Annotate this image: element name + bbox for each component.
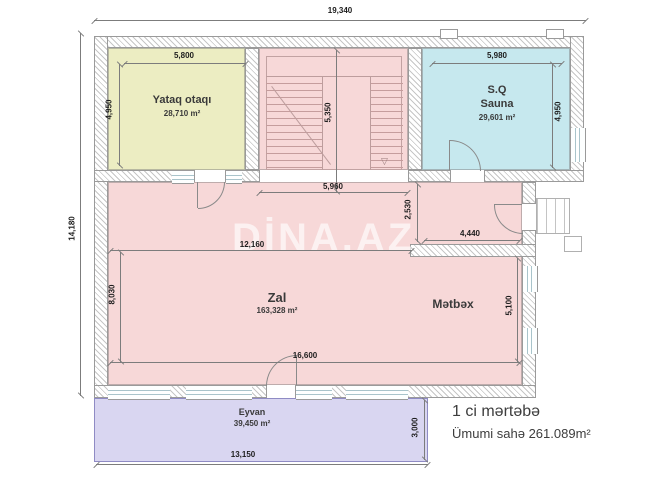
window-bottom-3	[296, 385, 332, 400]
dim-sauna-width: 5,980	[461, 51, 533, 60]
door-gap-entry	[266, 385, 296, 398]
label-eyvan-name: Eyvan	[182, 407, 322, 417]
dim-zal-left-height: 8,030	[108, 275, 117, 315]
dim-line-total-height	[80, 33, 81, 396]
dim-stair-height: 5,350	[324, 93, 333, 133]
dim-total-height: 14,180	[68, 209, 77, 249]
door-panel-yataq	[197, 182, 198, 208]
exterior-pad	[564, 236, 582, 252]
label-eyvan-area: 39,450 m²	[182, 419, 322, 428]
window-bottom-4	[346, 385, 408, 400]
dim-line-zal-upper-width	[110, 250, 412, 251]
total-area-text: Ümumi sahə 261.089m²	[452, 426, 591, 441]
window-bottom-1	[108, 385, 170, 400]
floor-plan: ▽ 19,340 14,180 5	[0, 0, 660, 495]
dim-line-hall-width	[424, 240, 520, 241]
dim-line-eyvan-width	[96, 464, 428, 465]
dim-eyvan-width: 13,150	[207, 450, 279, 459]
dim-line-total-width	[94, 20, 586, 21]
dim-line-sauna-width	[432, 63, 562, 64]
label-sauna-area: 29,601 m²	[427, 113, 567, 122]
exterior-steps	[536, 198, 570, 234]
window-sauna-right	[570, 128, 586, 162]
door-panel-sauna	[449, 140, 450, 170]
dim-total-width: 19,340	[304, 6, 376, 15]
dim-hall-width: 4,440	[434, 229, 506, 238]
dim-line-zal-left-height	[120, 252, 121, 362]
dim-line-hall-height	[417, 184, 418, 242]
dim-line-eyvan-height	[424, 400, 425, 460]
window-bottom-2	[186, 385, 252, 400]
dim-line-stair-width	[259, 192, 408, 193]
vent-notch-2	[546, 29, 564, 39]
label-sauna-sq: S.Q	[427, 84, 567, 96]
window-yataq-1	[172, 170, 194, 184]
watermark: DİNA.AZ	[232, 216, 415, 261]
floor-title: 1 ci mərtəbə	[452, 403, 540, 421]
vent-notch-1	[440, 29, 458, 39]
wall-corridor-bottom	[410, 244, 536, 257]
wall-top	[94, 36, 584, 48]
stairs-landing-line	[266, 76, 402, 77]
label-zal-name: Zal	[207, 290, 347, 305]
dim-line-yataq-width	[124, 63, 246, 64]
wall-stairs-sauna	[408, 48, 422, 170]
window-metbex-2	[522, 328, 538, 354]
door-gap-corridor	[522, 203, 536, 231]
dim-stair-width: 5,960	[297, 182, 369, 191]
dim-zal-lower-width: 16,600	[269, 351, 341, 360]
label-sauna-name: Sauna	[427, 98, 567, 110]
door-panel-corridor	[494, 204, 522, 205]
label-zal-area: 163,328 m²	[207, 306, 347, 315]
dim-eyvan-height: 3,000	[411, 408, 420, 448]
door-gap-yataq	[194, 170, 226, 182]
window-metbex-1	[522, 266, 538, 292]
window-yataq-2	[226, 170, 242, 184]
dim-hall-height: 2,530	[404, 190, 413, 230]
label-yataq-name: Yataq otaqı	[112, 94, 252, 106]
dim-line-zal-lower-width	[110, 362, 520, 363]
dim-zal-upper-width: 12,160	[216, 240, 288, 249]
dim-line-stair-height	[336, 50, 337, 192]
label-yataq-area: 28,710 m²	[112, 109, 252, 118]
door-gap-sauna	[450, 170, 485, 182]
dim-yataq-width: 5,800	[148, 51, 220, 60]
label-metbex-name: Mətbəx	[383, 297, 523, 311]
stairs-down-arrow-icon: ▽	[381, 157, 388, 166]
wall-mid-right	[408, 170, 584, 182]
